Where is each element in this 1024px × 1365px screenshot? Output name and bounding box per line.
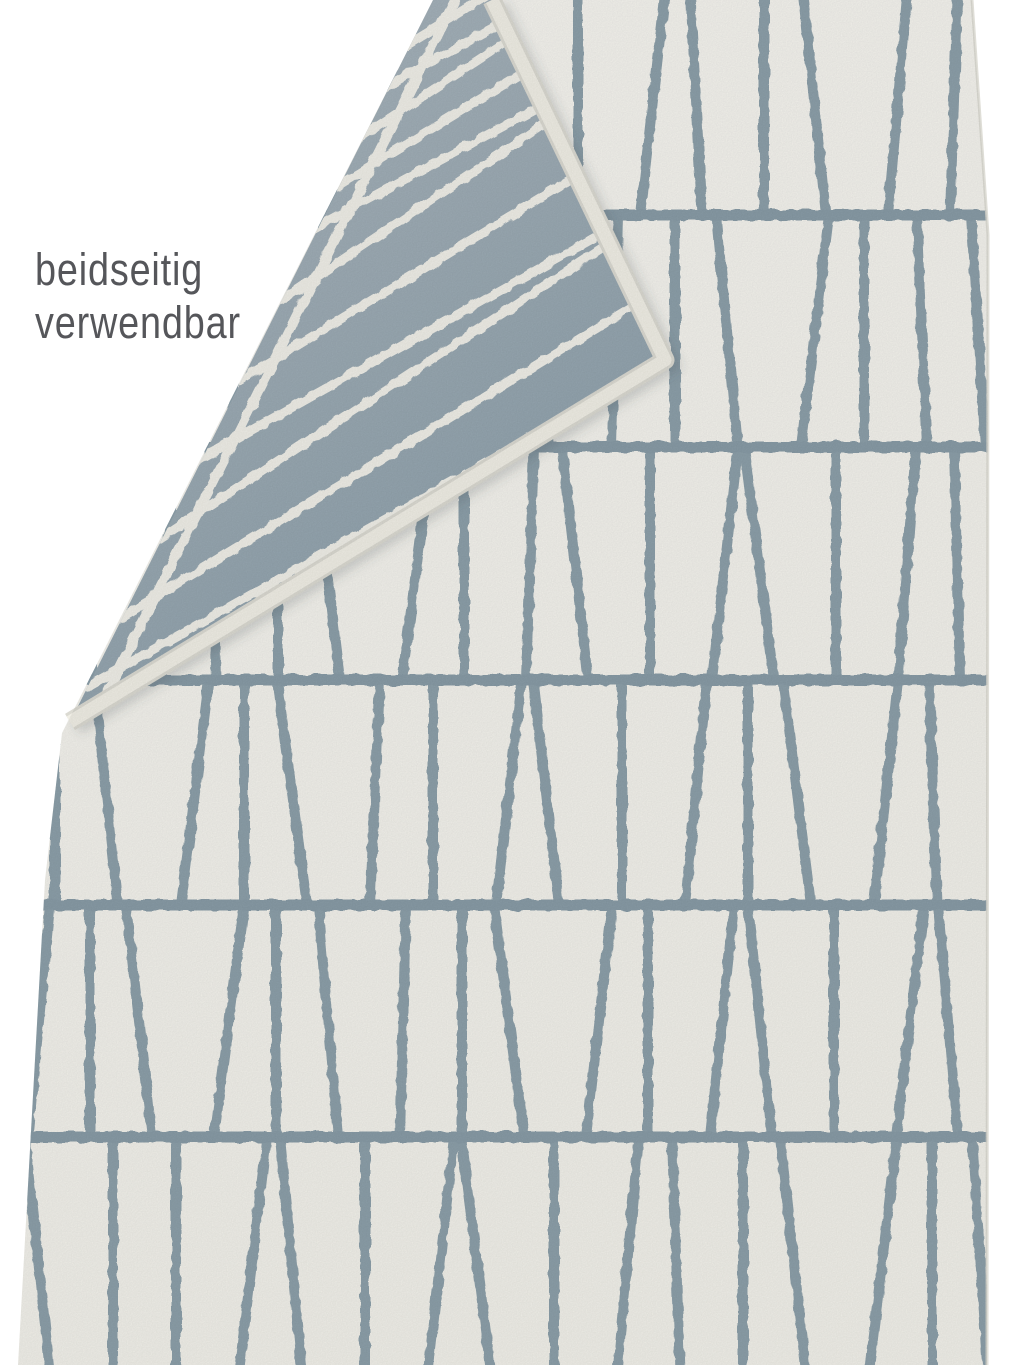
caption-text: beidseitig verwendbar — [35, 243, 241, 349]
texture-overlay — [0, 0, 1024, 1365]
caption-line-2: verwendbar — [35, 296, 241, 349]
caption-line-1: beidseitig — [35, 243, 241, 296]
product-photo: beidseitig verwendbar — [0, 0, 1024, 1365]
rug-illustration — [0, 0, 1024, 1365]
